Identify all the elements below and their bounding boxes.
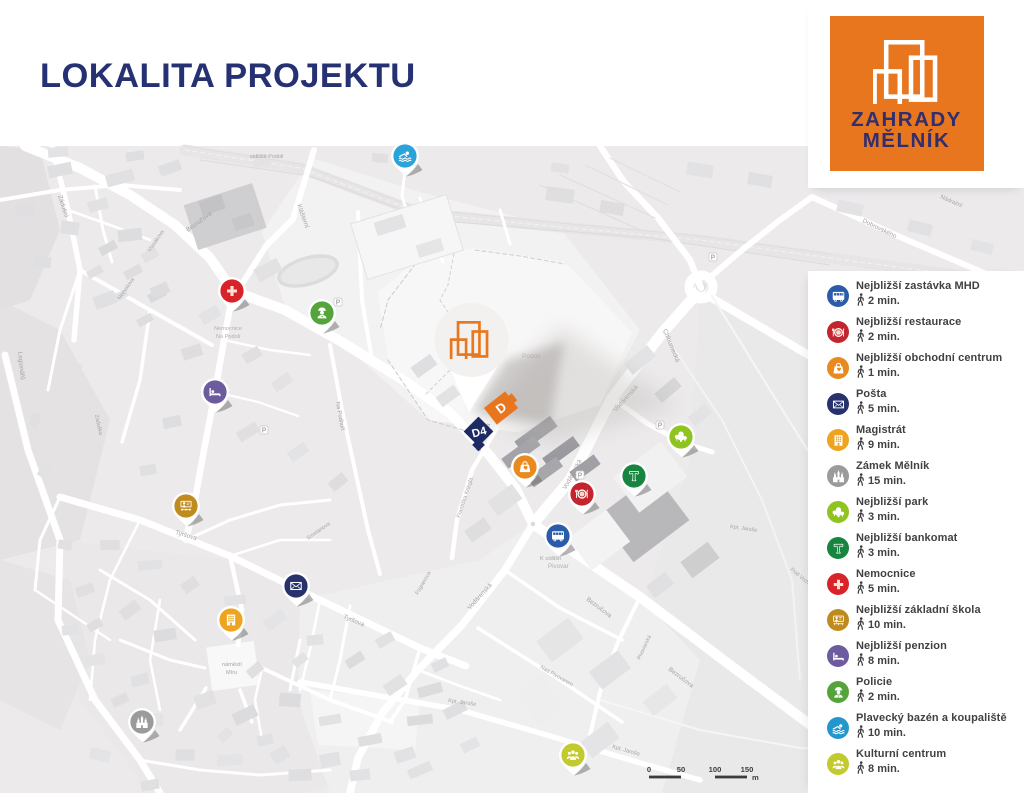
svg-text:P: P	[336, 300, 341, 307]
svg-text:Na Podolí: Na Podolí	[216, 334, 241, 340]
svg-text:P: P	[578, 473, 583, 480]
svg-text:Nemocnice: Nemocnice	[214, 326, 242, 332]
svg-text:0: 0	[647, 765, 651, 774]
svg-text:náměstí: náměstí	[222, 662, 242, 668]
svg-text:Míru: Míru	[226, 670, 237, 676]
svg-text:m: m	[752, 773, 759, 782]
svg-text:P: P	[262, 428, 267, 435]
svg-text:sídliště Podolí: sídliště Podolí	[250, 154, 284, 160]
svg-text:50: 50	[677, 765, 685, 774]
svg-text:Pivovar: Pivovar	[548, 563, 569, 570]
svg-text:P: P	[658, 423, 663, 430]
svg-text:100: 100	[709, 765, 722, 774]
svg-text:K sídlišti: K sídlišti	[540, 556, 561, 562]
svg-text:P: P	[711, 255, 716, 262]
